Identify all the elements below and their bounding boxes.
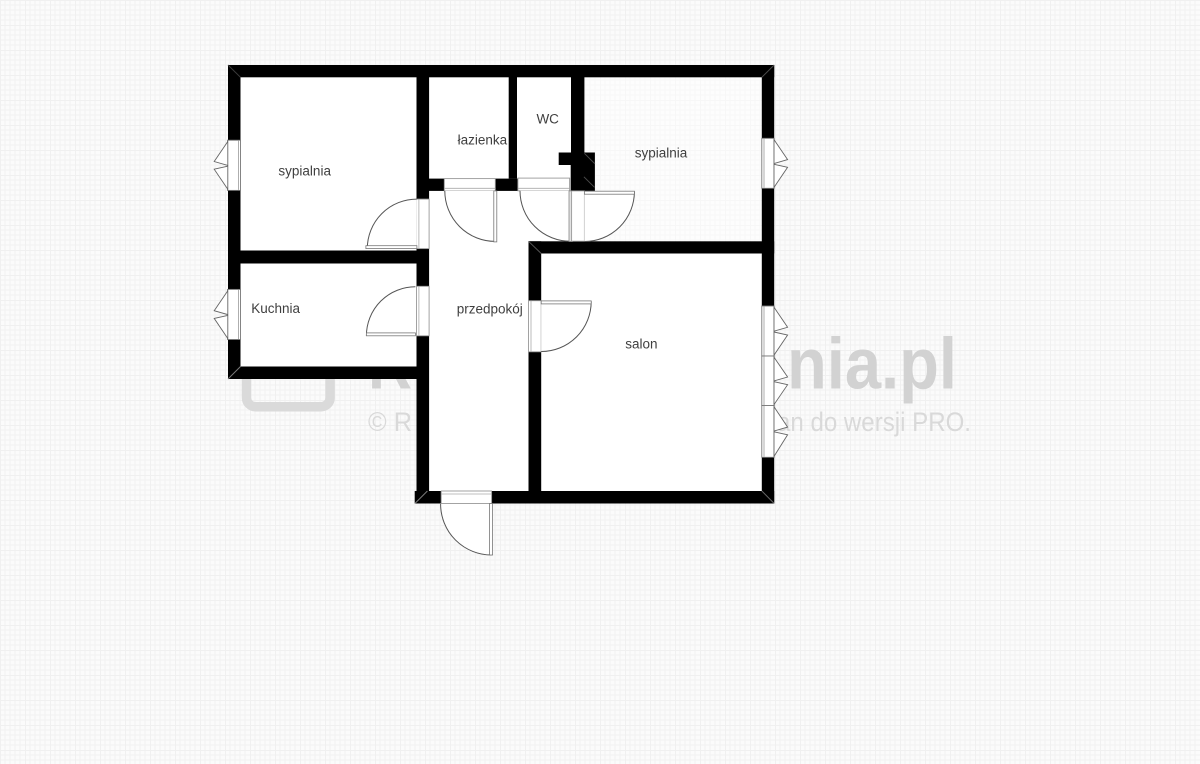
svg-text:przedpokój: przedpokój bbox=[457, 302, 523, 317]
svg-text:nia.pl: nia.pl bbox=[787, 325, 957, 405]
svg-text:sypialnia: sypialnia bbox=[278, 164, 331, 179]
svg-text:WC: WC bbox=[536, 112, 559, 127]
svg-text:an do wersji PRO.: an do wersji PRO. bbox=[777, 407, 971, 437]
svg-text:łazienka: łazienka bbox=[458, 132, 508, 147]
svg-text:salon: salon bbox=[625, 337, 657, 352]
svg-text:© R: © R bbox=[368, 407, 412, 437]
svg-text:sypialnia: sypialnia bbox=[635, 146, 688, 161]
svg-text:Kuchnia: Kuchnia bbox=[251, 301, 300, 316]
